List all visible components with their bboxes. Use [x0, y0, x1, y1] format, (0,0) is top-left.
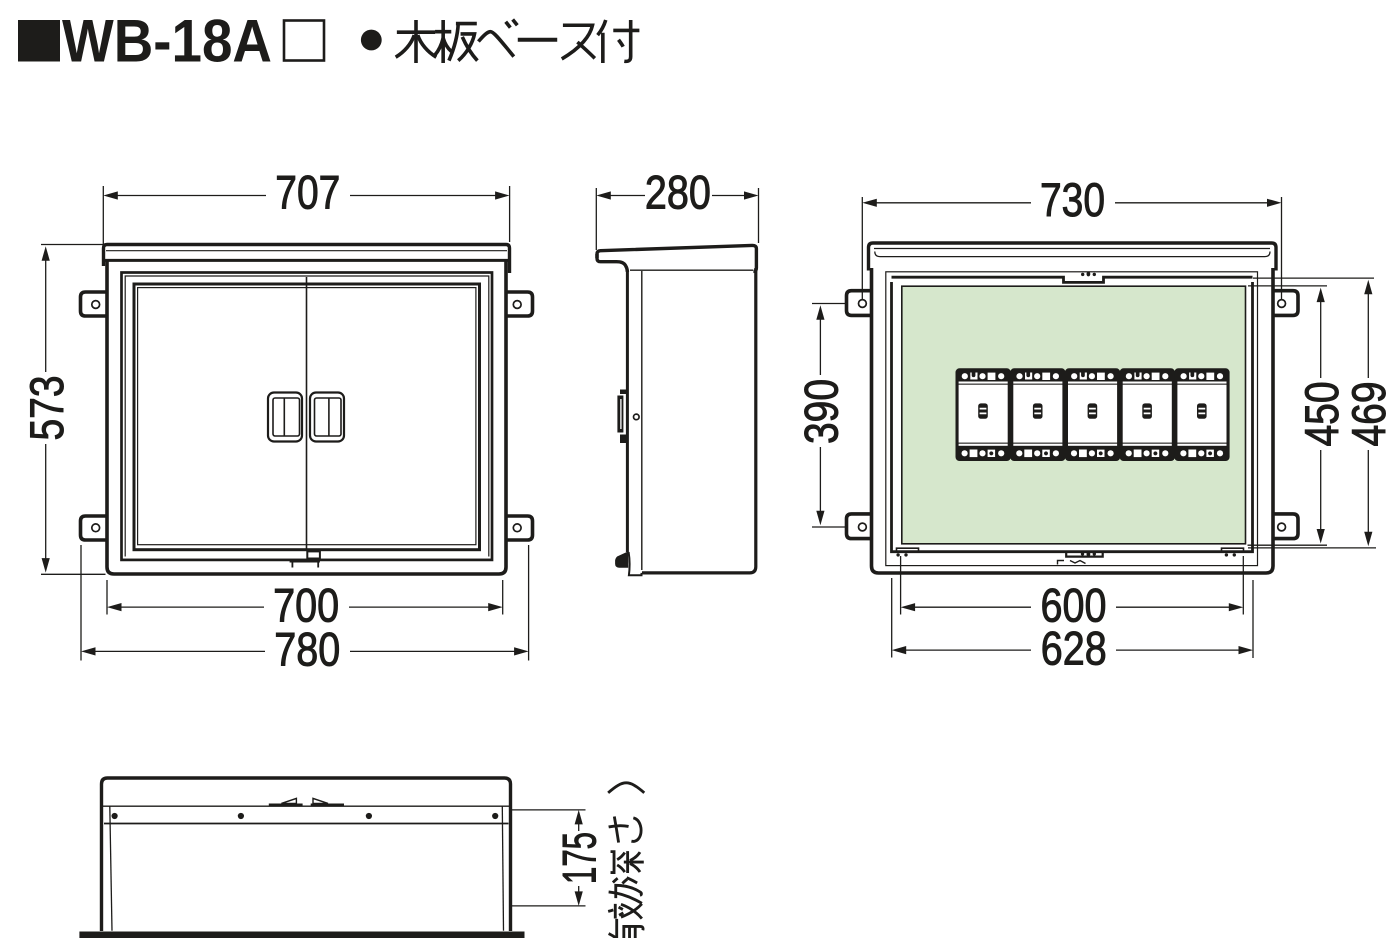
svg-text:707: 707 [275, 167, 340, 220]
svg-text:628: 628 [1041, 622, 1107, 675]
svg-text:780: 780 [274, 623, 340, 676]
svg-text:390: 390 [796, 379, 849, 444]
svg-text:573: 573 [21, 376, 74, 441]
svg-text:280: 280 [645, 167, 711, 220]
svg-text:469: 469 [1343, 382, 1387, 447]
svg-text:450: 450 [1296, 382, 1349, 447]
svg-text:175: 175 [554, 832, 607, 884]
svg-text:730: 730 [1040, 174, 1105, 227]
svg-text:WB-18A: WB-18A [62, 8, 272, 75]
